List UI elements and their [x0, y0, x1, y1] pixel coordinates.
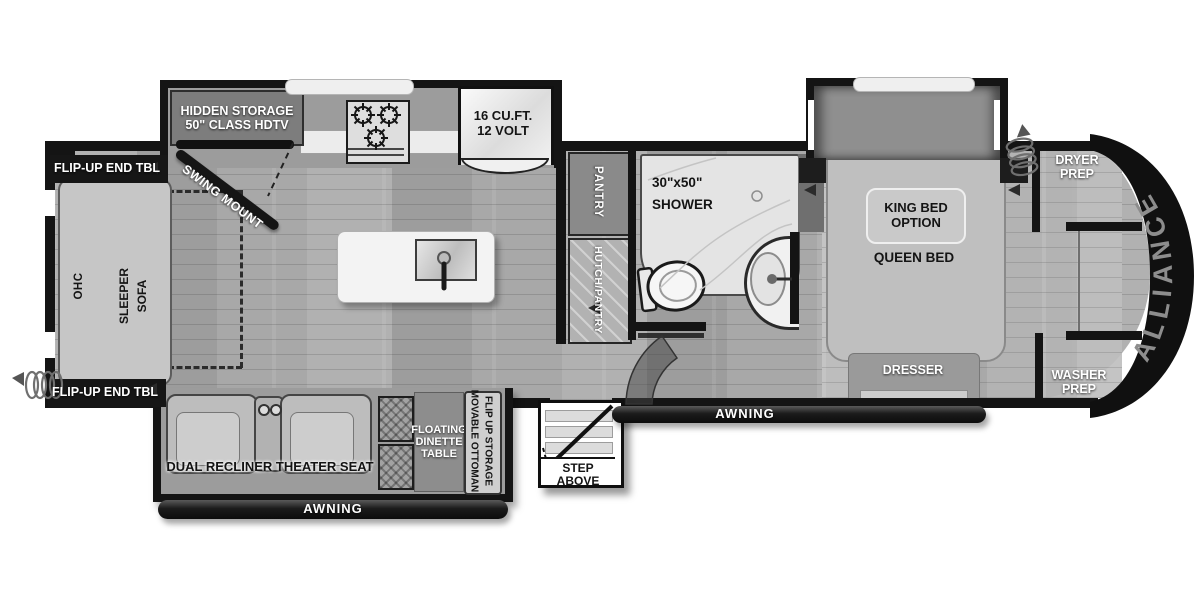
- theater-seat-right-cushion: [290, 412, 354, 466]
- island-sink: [415, 239, 477, 281]
- shower-word: SHOWER: [652, 194, 713, 216]
- fridge-label: 16 CU.FT. 12 VOLT: [458, 104, 548, 144]
- dinette-word-1: FLOATING: [411, 424, 466, 436]
- slide-travel-dash-bottom: [168, 366, 242, 369]
- washer-prep-word: PREP: [1046, 382, 1112, 396]
- hdtv-label: 50" CLASS HDTV: [185, 118, 288, 132]
- closet-top-wall: [1066, 222, 1142, 231]
- pantry-label: PANTRY: [592, 166, 604, 218]
- flip-up-bottom-label: FLIP-UP END TBL: [52, 385, 158, 399]
- kitchen-slide-topper: [285, 79, 414, 95]
- shower-size: 30"x50": [652, 172, 713, 194]
- theater-seat-label: DUAL RECLINER THEATER SEAT: [162, 460, 378, 475]
- bath-bedroom-wall: [790, 232, 799, 324]
- sofa-label: SOFA: [135, 280, 149, 313]
- bed-slide-window-left: [808, 100, 814, 150]
- dinette-table: FLOATING DINETTE TABLE: [414, 392, 464, 492]
- ohc-label: OHC: [73, 272, 85, 299]
- bath-left-wall: [628, 148, 636, 340]
- main-awning-label: AWNING: [660, 407, 830, 422]
- steps-icon-3: [545, 442, 613, 454]
- hidden-storage-label: HIDDEN STORAGE: [181, 104, 294, 118]
- closet-bottom-wall: [1066, 331, 1142, 340]
- king-bed-option-box: KING BED OPTION: [866, 188, 966, 244]
- dryer-word: DRYER: [1044, 153, 1110, 167]
- ottoman-1: [378, 396, 414, 442]
- theater-seat-left-cushion: [176, 412, 240, 466]
- queen-bed-label: QUEEN BED: [866, 250, 962, 265]
- nightstand-right: [1000, 158, 1028, 183]
- king-option-label: OPTION: [891, 216, 941, 231]
- bed-slide-window-right: [994, 100, 1000, 150]
- sleeper-label: SLEEPER: [117, 268, 131, 324]
- dryer-wall: [1032, 150, 1040, 232]
- rear-window: [45, 190, 55, 216]
- dresser-label: DRESSER: [848, 363, 978, 377]
- stove-drawer: [348, 148, 404, 156]
- flip-up-storage-label: FLIP UP STORAGE: [483, 396, 494, 486]
- tv-stored-bar: [176, 140, 294, 149]
- shower-label: 30"x50" SHOWER: [652, 172, 713, 215]
- steps-icon-2: [545, 426, 613, 438]
- step-above-label: STEP ABOVE: [541, 462, 615, 489]
- king-bed-label: KING BED: [884, 201, 948, 216]
- nightstand-left: [799, 158, 826, 183]
- bedroom-slide-topper: [853, 77, 975, 92]
- top-wall-right: [1000, 141, 1098, 151]
- bath-threshold: [638, 333, 704, 338]
- rear-window-2: [45, 332, 55, 358]
- ottoman-2: [378, 444, 414, 490]
- dinette-word-3: TABLE: [421, 448, 457, 460]
- cup-holder-2: [270, 404, 282, 416]
- movable-ottoman-label: MOVABLE OTTOMAN: [469, 390, 480, 492]
- fridge-volt: 12 VOLT: [477, 124, 529, 139]
- dinette-word-2: DINETTE: [415, 436, 462, 448]
- flip-up-top-label: FLIP-UP END TBL: [54, 161, 160, 175]
- cup-holder-1: [258, 404, 270, 416]
- top-wall-mid: [556, 141, 812, 151]
- closet-rod: [1078, 231, 1080, 331]
- hidden-storage-cabinet: HIDDEN STORAGE 50" CLASS HDTV: [170, 90, 304, 146]
- rear-awning-label: AWNING: [158, 502, 508, 517]
- washer-prep-label: WASHER PREP: [1046, 368, 1112, 396]
- steps-icon: [545, 410, 613, 422]
- fridge-size: 16 CU.FT.: [474, 109, 533, 124]
- washer-wall: [1035, 333, 1043, 406]
- dryer-prep-word: PREP: [1044, 167, 1110, 181]
- pantry-left-wall: [556, 148, 566, 344]
- rv-floorplan: HIDDEN STORAGE 50" CLASS HDTV SWING MOUN…: [0, 0, 1200, 600]
- dryer-prep-label: DRYER PREP: [1044, 153, 1110, 181]
- washer-word: WASHER: [1046, 368, 1112, 382]
- hutch-pantry-label: HUTCH/PANTRY: [592, 246, 604, 334]
- bath-bottom-wall: [628, 322, 706, 331]
